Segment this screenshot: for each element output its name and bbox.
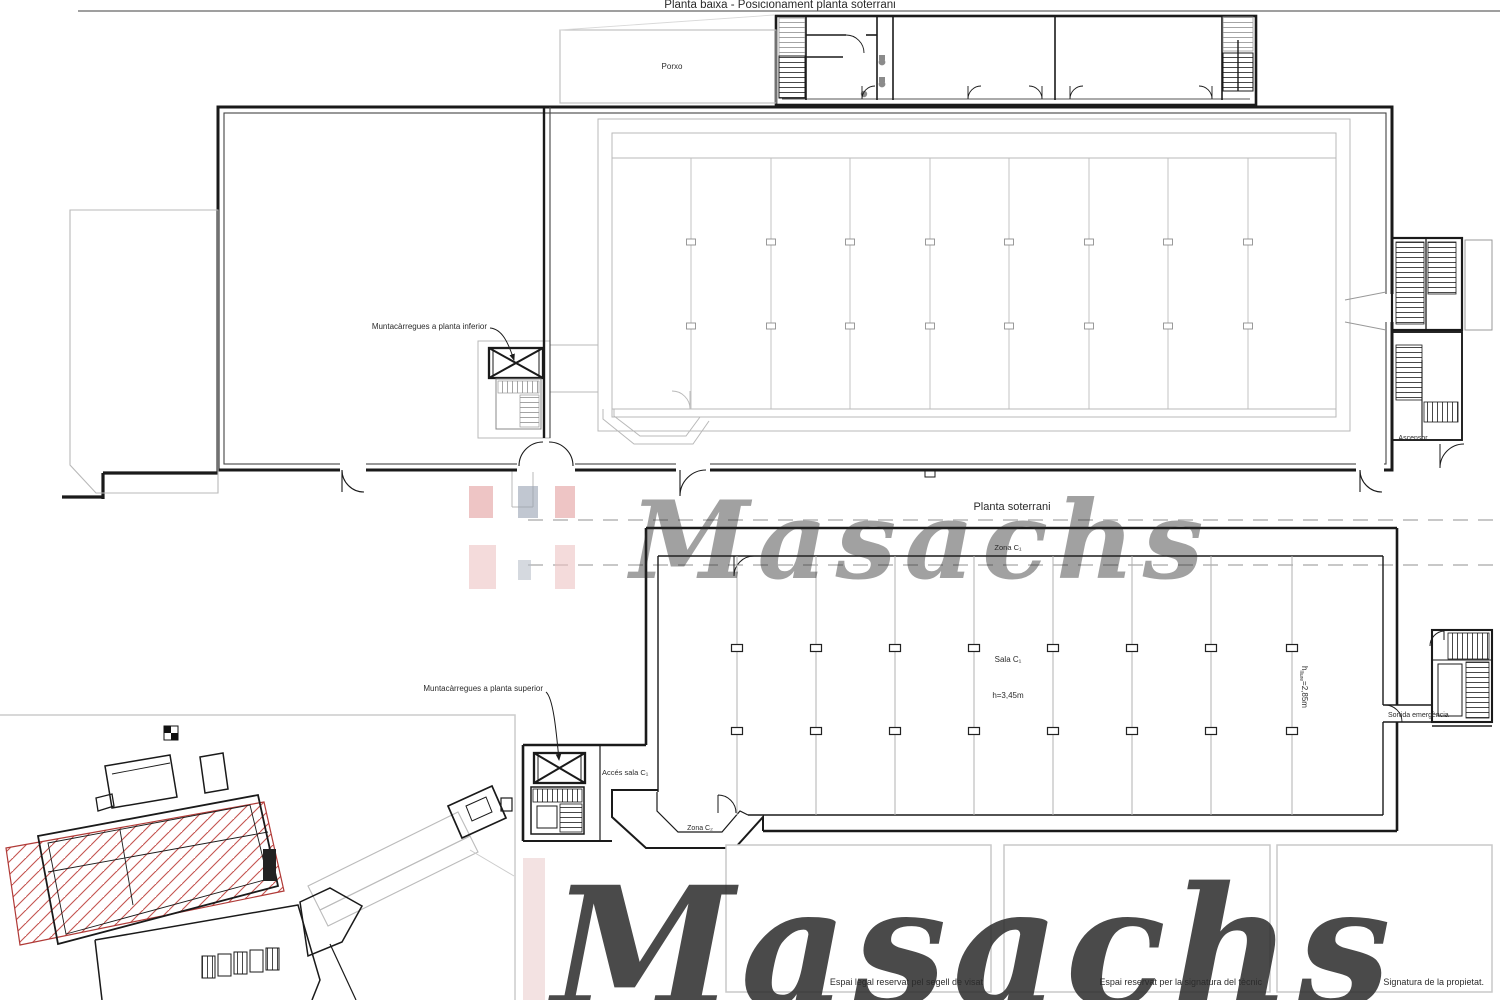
watermark-brand-text-bottom: Masachs xyxy=(547,850,1397,1000)
emergency-exit-label: Sortida emergència xyxy=(1388,712,1449,719)
watermark-brand-text: Masachs xyxy=(626,478,1211,604)
watermark-center: Masachs xyxy=(469,478,1211,604)
zone2-label: Zona C₂ xyxy=(687,825,713,832)
survey-marker-icon xyxy=(164,726,178,740)
ghost-basement-overlay xyxy=(478,119,1350,507)
porch-label: Porxo xyxy=(662,62,683,71)
freight-lift-lower-label: Muntacàrregues a planta superior xyxy=(423,684,543,693)
drawing-sheet: Planta baixa - Posicionament planta sote… xyxy=(0,0,1500,1000)
clear-height-label: hlliure=2,85m xyxy=(1298,666,1309,708)
upper-plan-top-strip xyxy=(776,16,1256,105)
floorplan-canvas: Planta baixa - Posicionament planta sote… xyxy=(0,0,1500,1000)
masachs-logo-icon xyxy=(469,486,575,589)
freight-lift-lower-leader xyxy=(546,692,559,760)
porch-diagonal xyxy=(560,15,774,30)
access-label: Accés sala C₁ xyxy=(602,768,649,777)
footer-box-owner-signature-label: Signatura de la propietat. xyxy=(1383,977,1484,987)
upper-plan-title: Planta baixa - Posicionament planta sote… xyxy=(664,0,895,11)
hall-height-label: h=3,45m xyxy=(992,691,1024,700)
watermark-bottom: Masachs xyxy=(449,850,1397,1000)
freight-lift-upper-label: Muntacàrregues a planta inferior xyxy=(372,322,488,331)
site-plan xyxy=(0,715,515,1000)
freight-lift-lower xyxy=(531,753,585,834)
stair-tower-right xyxy=(1392,238,1492,468)
elevator-label: Ascensor xyxy=(1398,435,1428,442)
hall-label: Sala C₁ xyxy=(995,655,1022,664)
freight-lift-upper xyxy=(489,348,543,429)
masachs-logo-bottom-bar xyxy=(523,858,545,1000)
upper-plan-walls xyxy=(62,107,1394,499)
left-annex-outline xyxy=(70,210,218,493)
